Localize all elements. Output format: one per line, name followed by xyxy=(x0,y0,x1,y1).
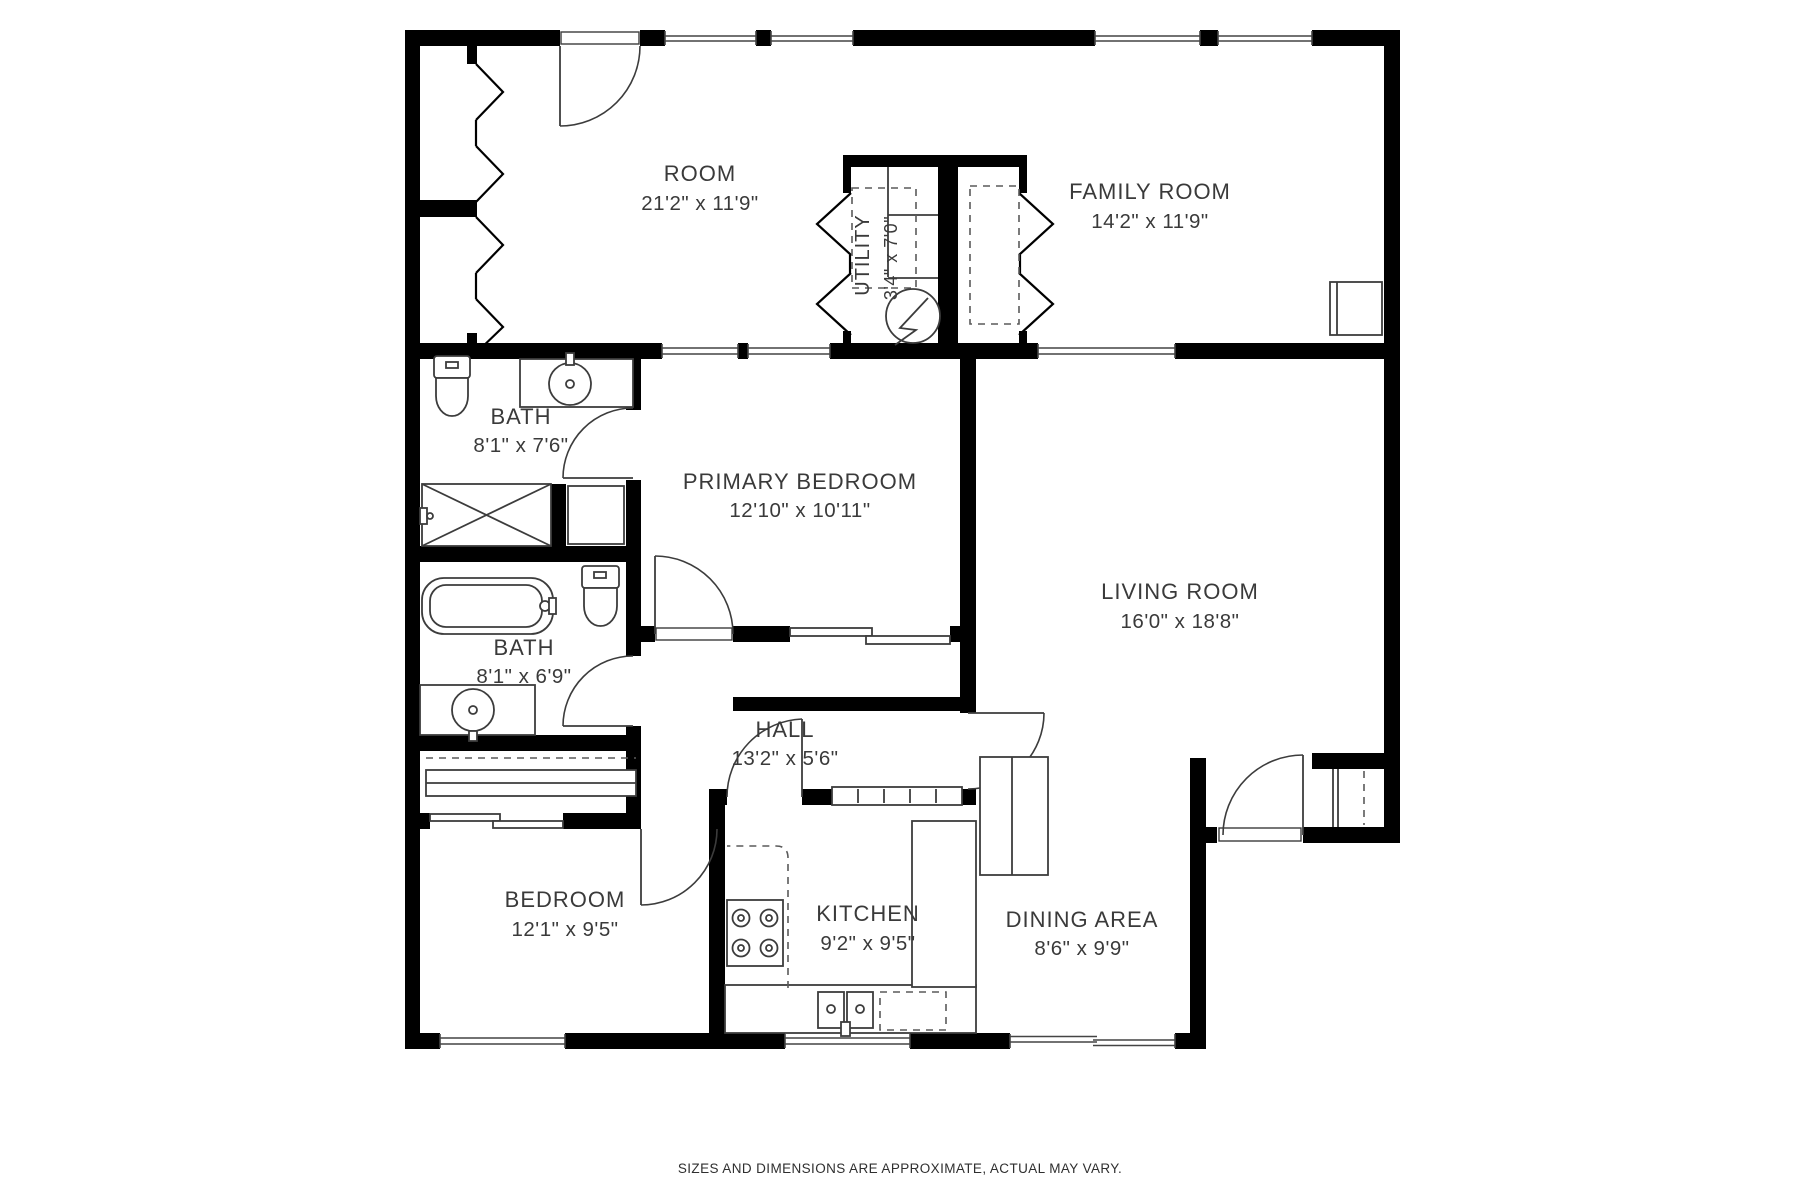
window xyxy=(1095,31,1200,45)
svg-text:8'1" x 7'6": 8'1" x 7'6" xyxy=(473,434,568,457)
disclaimer-text: SIZES AND DIMENSIONS ARE APPROXIMATE, AC… xyxy=(678,1161,1122,1176)
floor-plan-page: ROOM 21'2" x 11'9" UTILITY 3'4" x 7'0" F… xyxy=(0,0,1800,1200)
fireplace-icon xyxy=(1330,282,1382,335)
floor-plan: ROOM 21'2" x 11'9" UTILITY 3'4" x 7'0" F… xyxy=(0,0,1800,1200)
svg-text:BATH: BATH xyxy=(490,404,551,429)
kitchen-counter xyxy=(832,787,962,805)
refrigerator-icon xyxy=(980,757,1048,875)
window xyxy=(440,1034,565,1048)
toilet-icon xyxy=(434,356,470,416)
svg-text:HALL: HALL xyxy=(755,717,814,742)
window xyxy=(665,31,756,45)
svg-text:14'2" x 11'9": 14'2" x 11'9" xyxy=(1091,210,1208,233)
sink-icon xyxy=(520,353,633,407)
svg-text:UTILITY: UTILITY xyxy=(852,214,874,295)
bathtub-icon xyxy=(422,578,556,634)
svg-text:BATH: BATH xyxy=(493,635,554,660)
svg-text:BEDROOM: BEDROOM xyxy=(505,887,626,912)
toilet-icon xyxy=(582,566,619,626)
svg-text:16'0" x 18'8": 16'0" x 18'8" xyxy=(1121,610,1240,633)
svg-text:12'1" x 9'5": 12'1" x 9'5" xyxy=(511,918,618,941)
window xyxy=(1010,1034,1175,1048)
stove-icon xyxy=(727,900,783,966)
svg-text:ROOM: ROOM xyxy=(664,161,736,186)
window xyxy=(771,31,853,45)
svg-text:13'2" x 5'6": 13'2" x 5'6" xyxy=(731,747,838,770)
svg-text:PRIMARY BEDROOM: PRIMARY BEDROOM xyxy=(683,469,917,494)
closet xyxy=(568,486,624,544)
window xyxy=(1218,31,1312,45)
svg-text:3'4" x 7'0": 3'4" x 7'0" xyxy=(881,216,901,300)
svg-text:8'6" x 9'9": 8'6" x 9'9" xyxy=(1034,937,1129,960)
svg-text:12'10" x 10'11": 12'10" x 10'11" xyxy=(729,499,870,522)
svg-text:9'2" x 9'5": 9'2" x 9'5" xyxy=(820,932,915,955)
svg-text:DINING AREA: DINING AREA xyxy=(1006,907,1159,932)
svg-text:21'2" x 11'9": 21'2" x 11'9" xyxy=(641,192,758,215)
svg-text:FAMILY ROOM: FAMILY ROOM xyxy=(1069,179,1231,204)
shower-icon xyxy=(420,484,551,546)
svg-text:KITCHEN: KITCHEN xyxy=(816,901,920,926)
svg-text:LIVING ROOM: LIVING ROOM xyxy=(1101,579,1259,604)
svg-text:8'1" x 6'9": 8'1" x 6'9" xyxy=(476,665,571,688)
sink-icon xyxy=(420,685,535,741)
